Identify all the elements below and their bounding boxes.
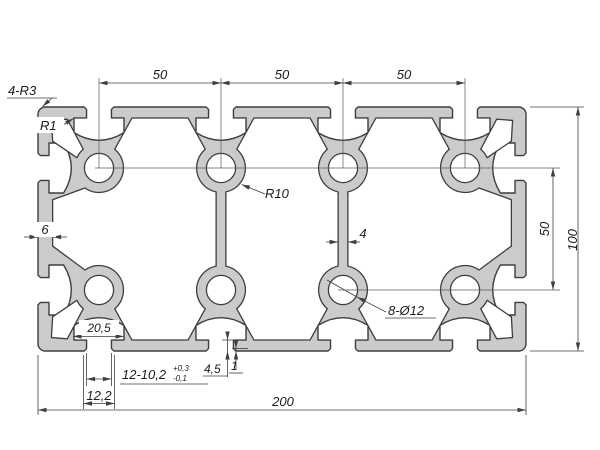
callout-fillet: R1 [40, 118, 57, 133]
profile-drawing-svg: 50 50 50 100 50 200 6 4 4-R3 R1 R10 8-Ø1… [0, 0, 600, 450]
callout-cavity-radius: R10 [265, 186, 290, 201]
dim-web-thickness: 4 [359, 226, 366, 241]
dim-lip-depth: 4,5 [204, 362, 221, 376]
dim-row-pitch: 50 [537, 221, 552, 236]
callout-corner-radius: 4-R3 [8, 83, 37, 98]
dim-slot-pitch-1: 50 [153, 67, 168, 82]
callout-bores: 8-Ø12 [388, 303, 425, 318]
dim-wall-thickness: 6 [41, 222, 49, 237]
dim-slot-channel-width: 20,5 [86, 321, 111, 335]
dim-slot-opening: 12-10,2 [122, 367, 167, 382]
dim-overall-height: 100 [565, 228, 580, 250]
profile-geometry [7, 78, 584, 415]
dim-slot-pitch-3: 50 [397, 67, 412, 82]
dim-lip-chamfer: 1 [231, 359, 238, 373]
dim-overall-width: 200 [271, 394, 294, 409]
dim-slot-outer-width: 12,2 [86, 388, 112, 403]
dim-slot-opening-tol-upper: +0,3 [173, 364, 189, 373]
drawing-canvas: 50 50 50 100 50 200 6 4 4-R3 R1 R10 8-Ø1… [0, 0, 600, 450]
dim-slot-pitch-2: 50 [275, 67, 290, 82]
dim-slot-opening-tol-lower: -0,1 [173, 374, 187, 383]
